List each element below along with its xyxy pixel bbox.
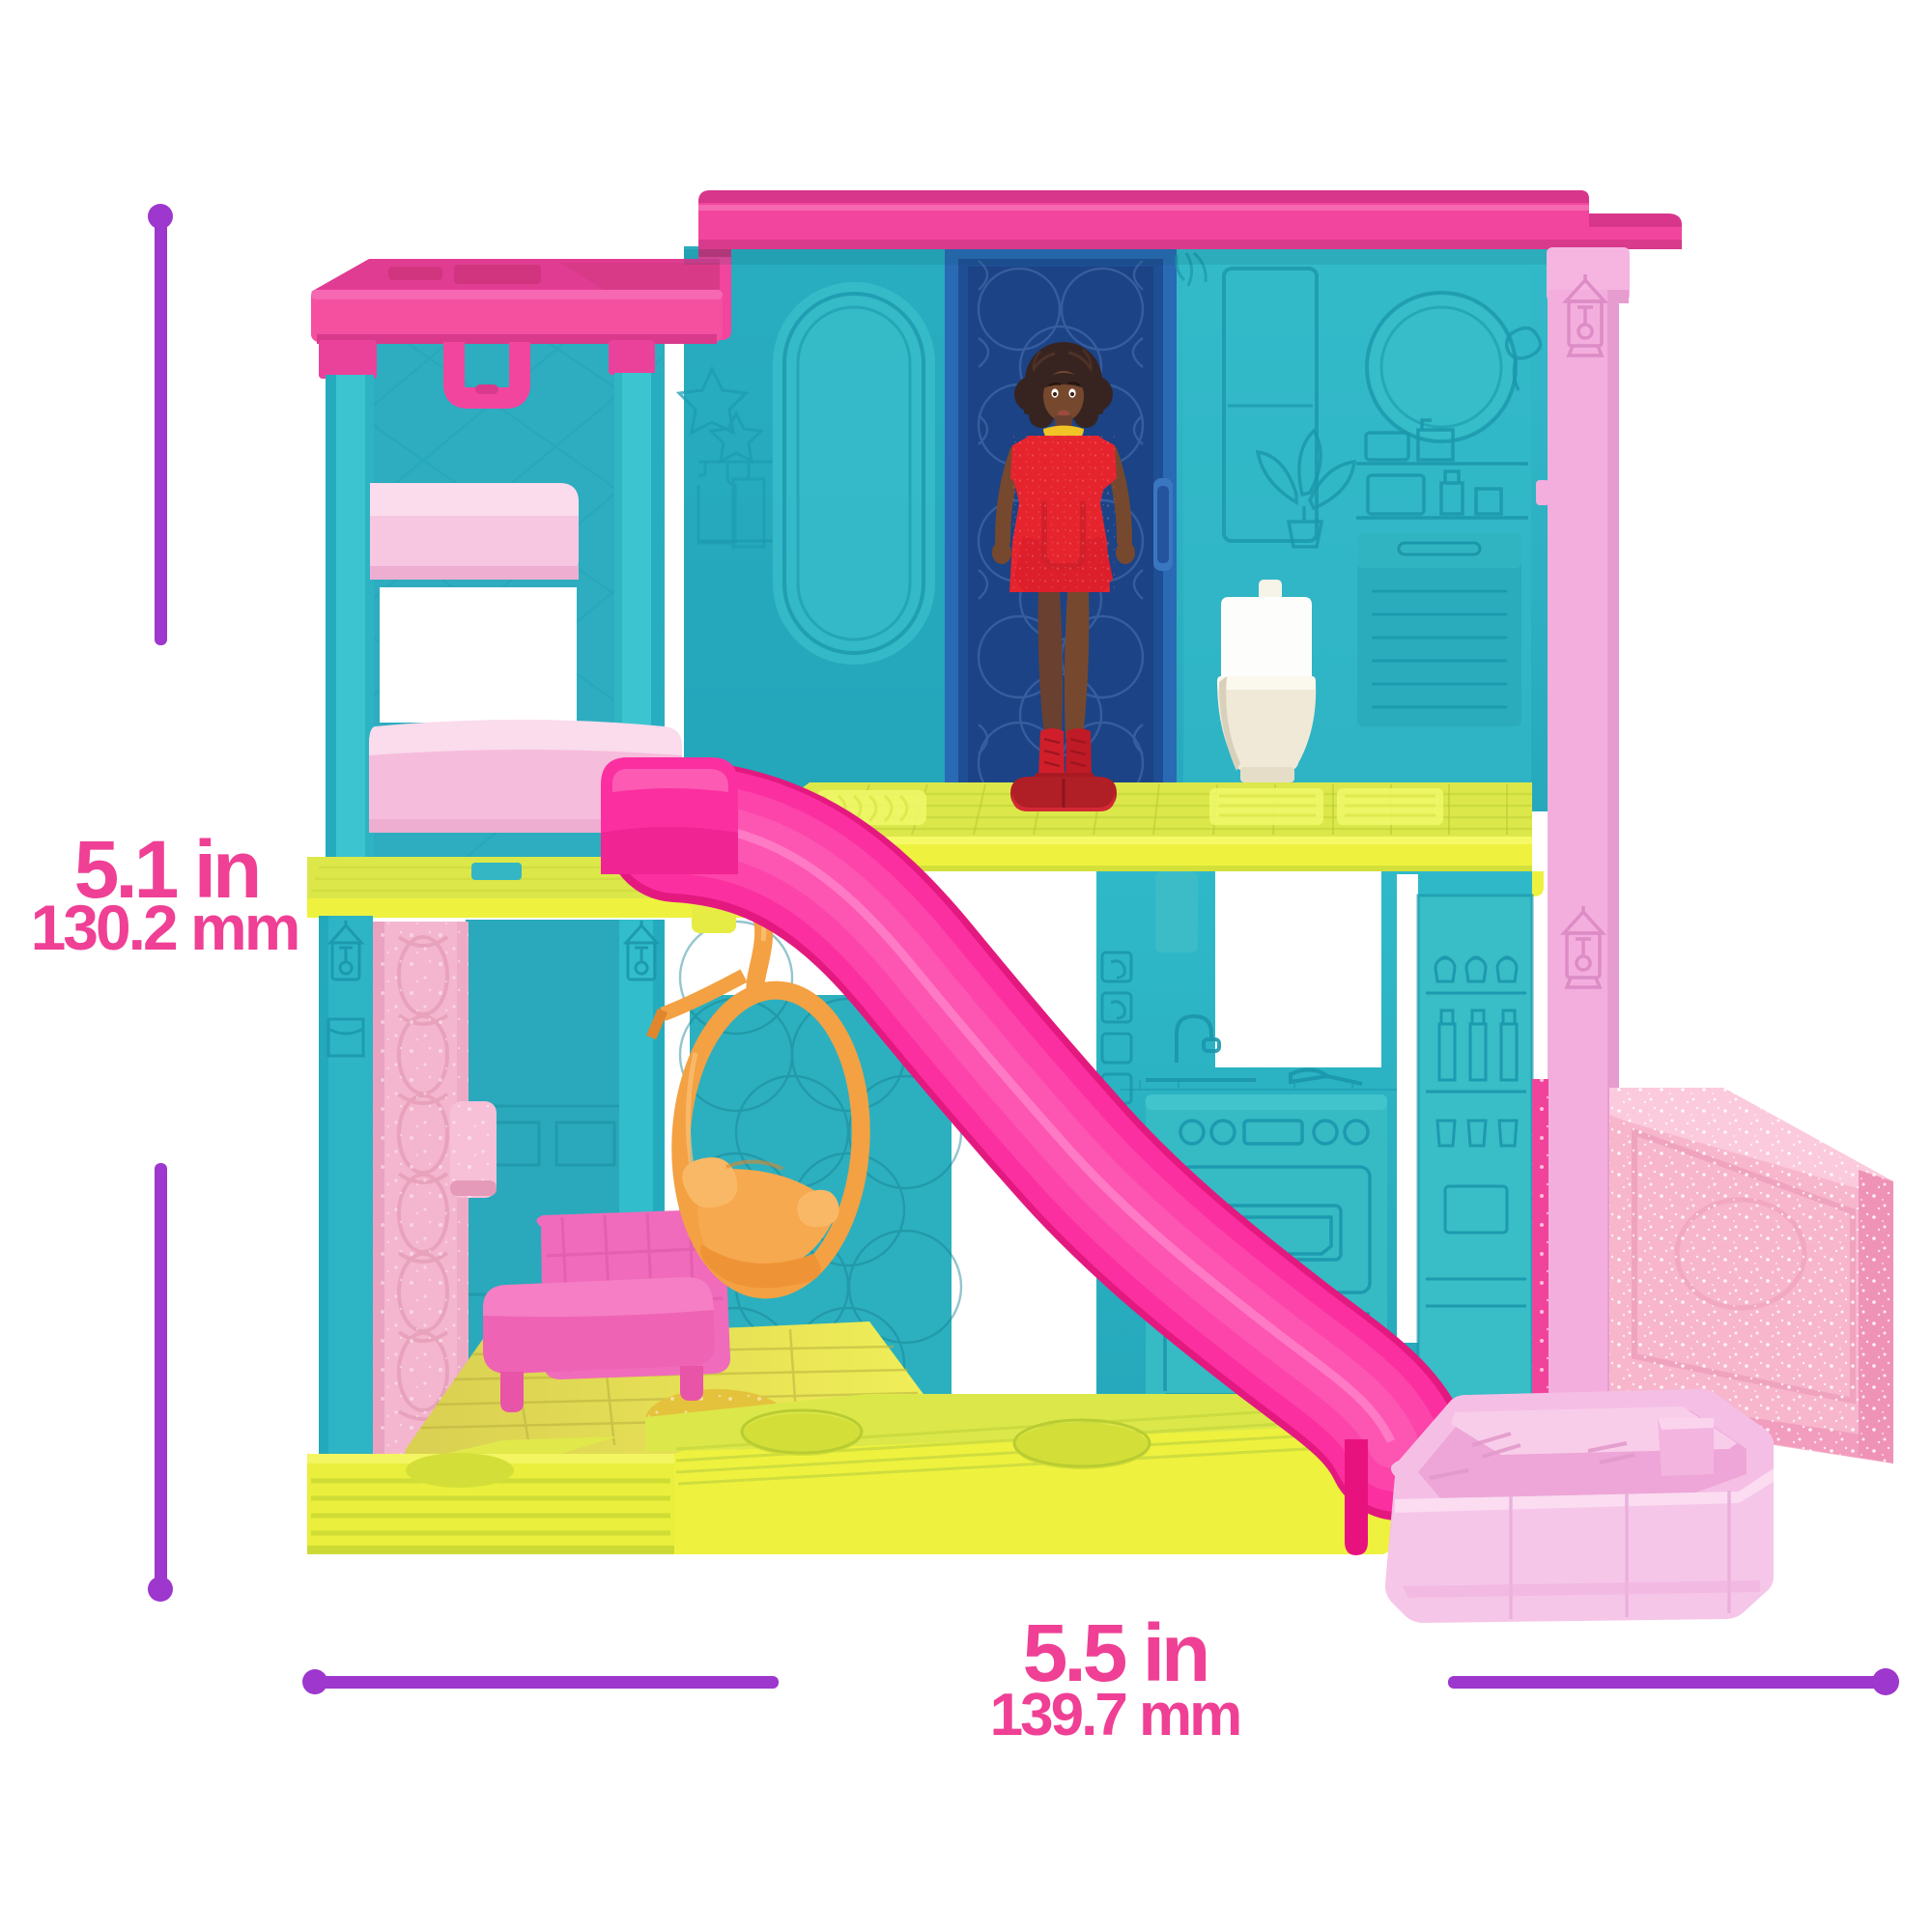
svg-text:130.2 mm: 130.2 mm <box>31 892 298 963</box>
svg-text:139.7 mm: 139.7 mm <box>990 1682 1240 1748</box>
